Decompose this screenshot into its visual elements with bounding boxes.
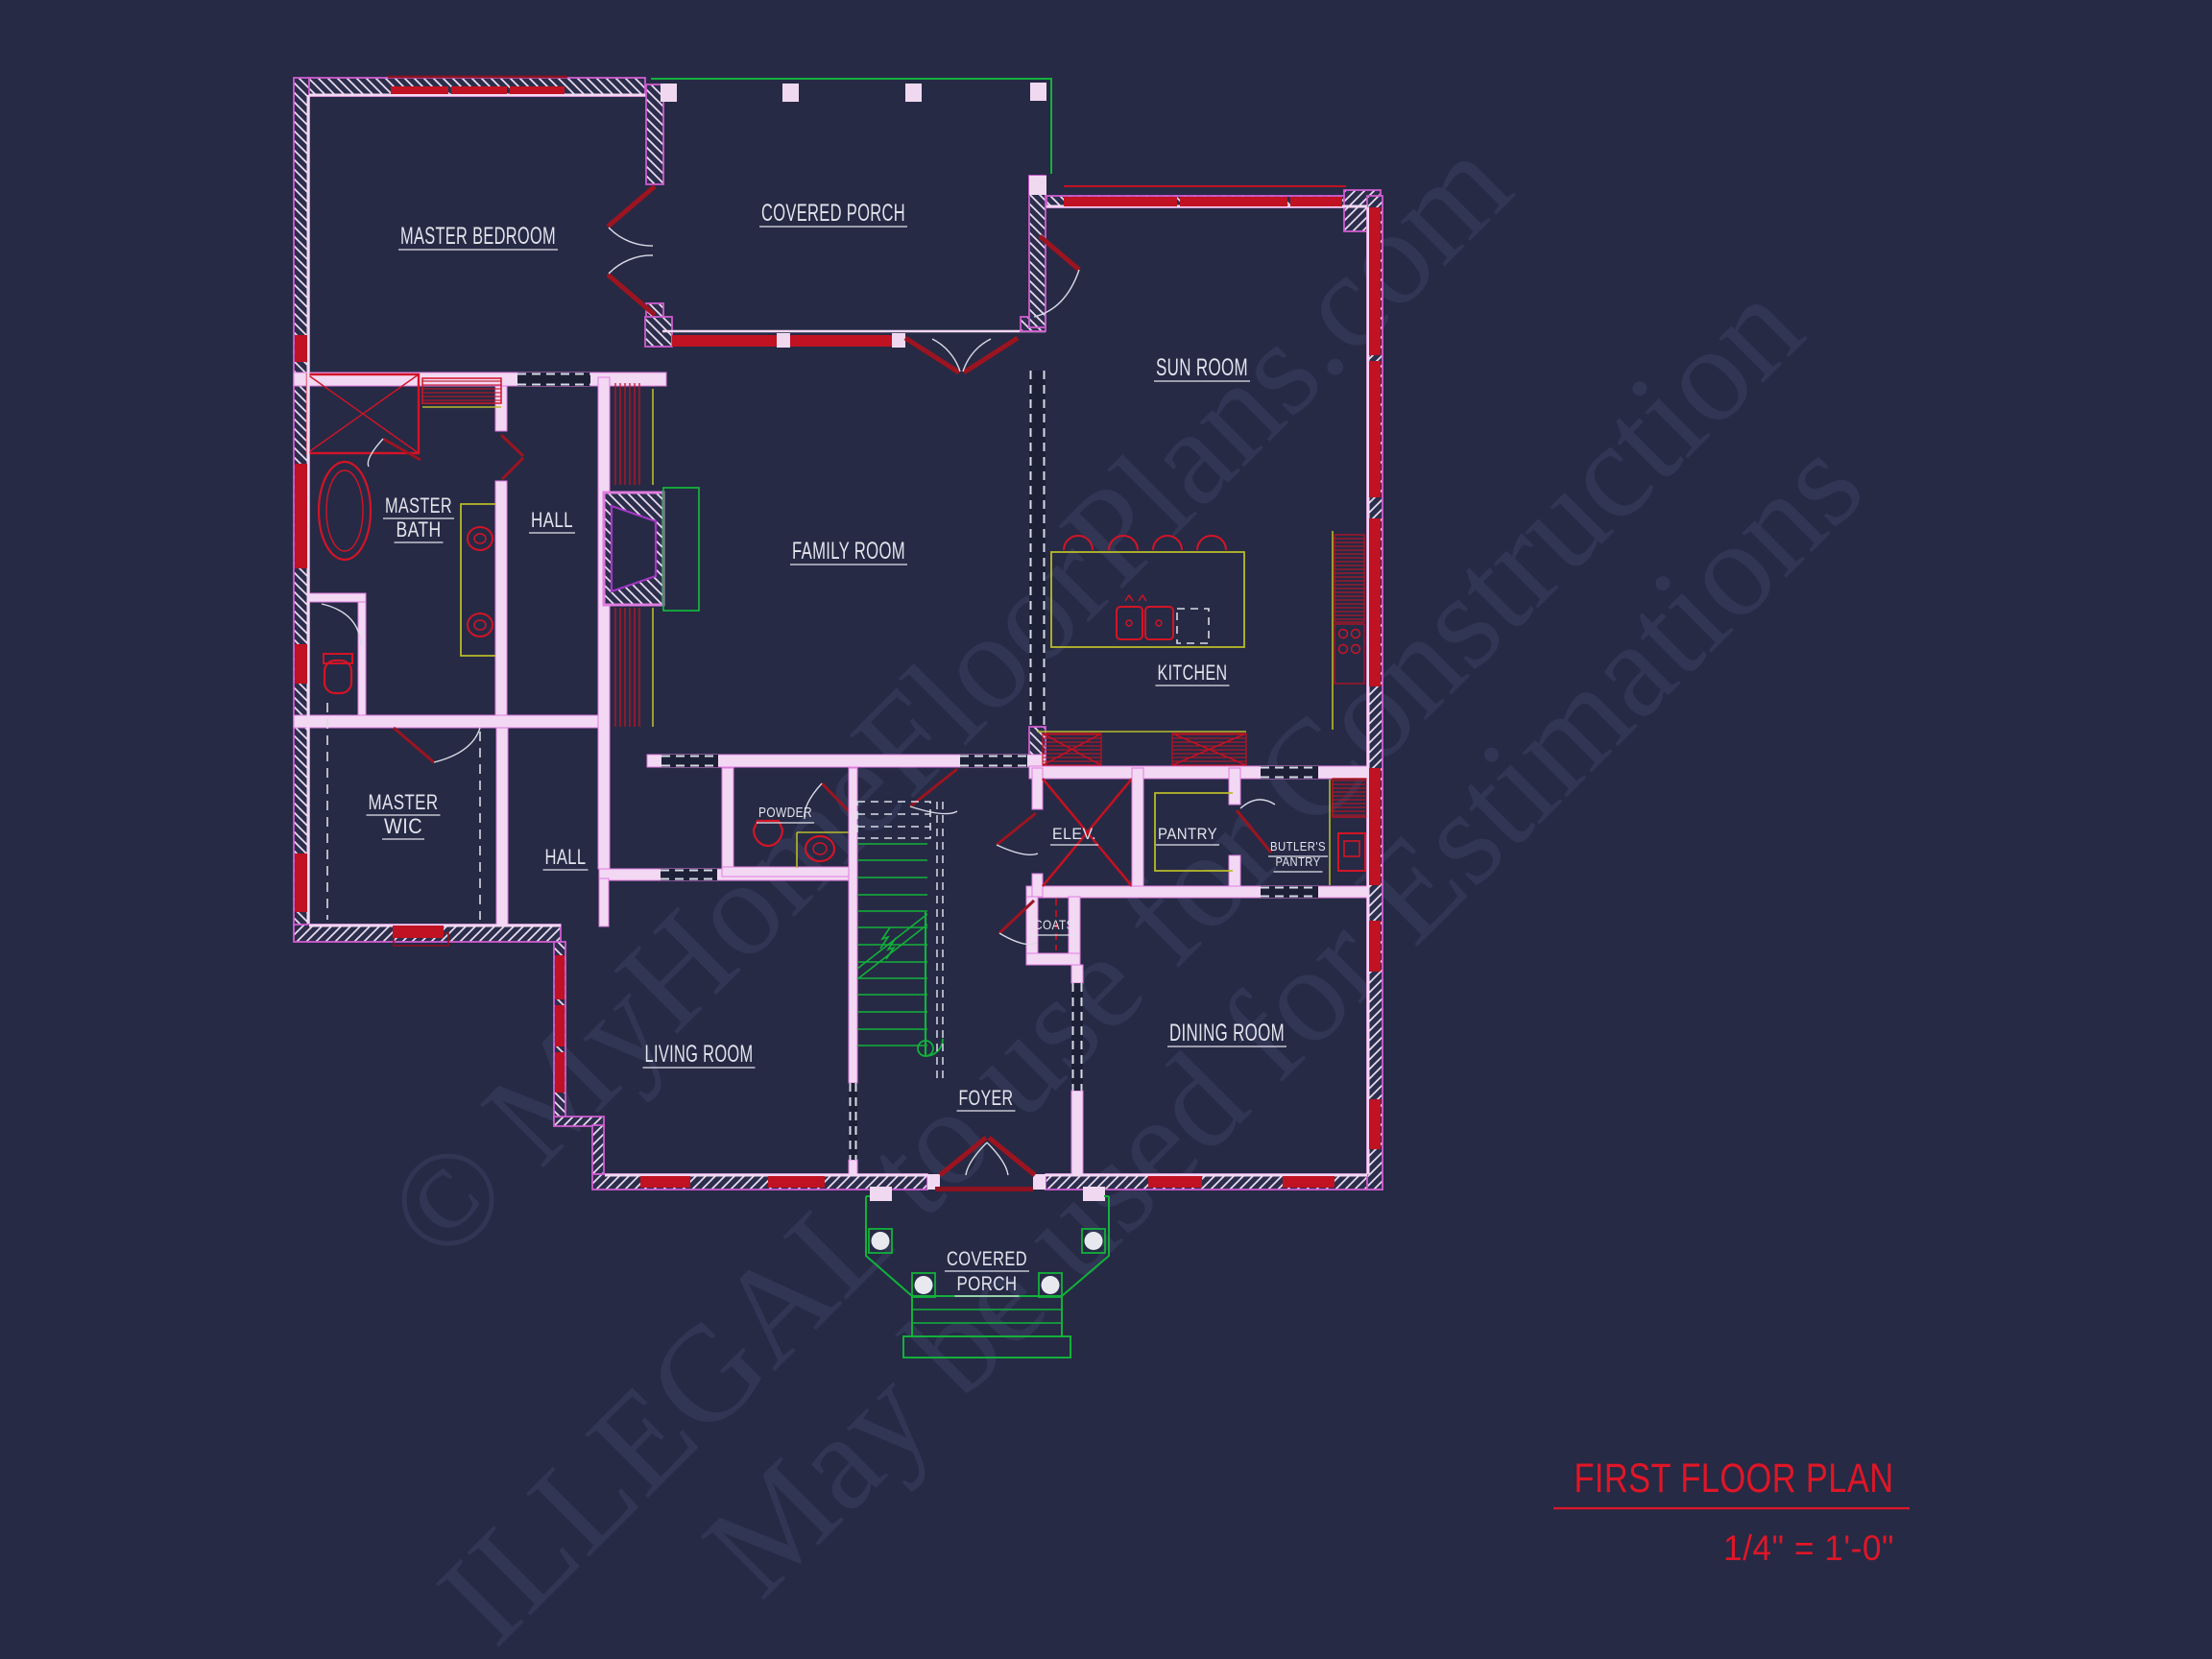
svg-text:SUN ROOM: SUN ROOM: [1156, 354, 1248, 381]
svg-text:MASTER: MASTER: [385, 493, 452, 517]
svg-text:ELEV.: ELEV.: [1052, 825, 1096, 843]
svg-text:HALL: HALL: [531, 508, 573, 532]
svg-text:HALL: HALL: [545, 845, 587, 869]
svg-text:LIVING ROOM: LIVING ROOM: [645, 1041, 754, 1068]
svg-text:PORCH: PORCH: [957, 1273, 1018, 1295]
svg-text:POWDER: POWDER: [758, 805, 812, 821]
svg-text:KITCHEN: KITCHEN: [1158, 661, 1228, 685]
svg-text:BATH: BATH: [397, 517, 442, 541]
svg-text:COVERED: COVERED: [947, 1248, 1027, 1270]
svg-text:WIC: WIC: [384, 814, 422, 838]
svg-text:FAMILY ROOM: FAMILY ROOM: [792, 538, 905, 565]
svg-text:PANTRY: PANTRY: [1276, 854, 1321, 869]
svg-text:FIRST FLOOR PLAN: FIRST FLOOR PLAN: [1575, 1455, 1894, 1502]
svg-text:MASTER: MASTER: [369, 790, 439, 814]
svg-text:COVERED PORCH: COVERED PORCH: [761, 200, 905, 227]
svg-text:COATS: COATS: [1034, 917, 1074, 932]
svg-text:MASTER BEDROOM: MASTER BEDROOM: [400, 223, 556, 250]
svg-text:BUTLER'S: BUTLER'S: [1270, 839, 1326, 854]
svg-text:FOYER: FOYER: [959, 1086, 1014, 1110]
svg-text:DINING ROOM: DINING ROOM: [1169, 1020, 1285, 1046]
svg-text:PANTRY: PANTRY: [1158, 825, 1217, 843]
svg-text:1/4" = 1'-0": 1/4" = 1'-0": [1723, 1528, 1894, 1568]
